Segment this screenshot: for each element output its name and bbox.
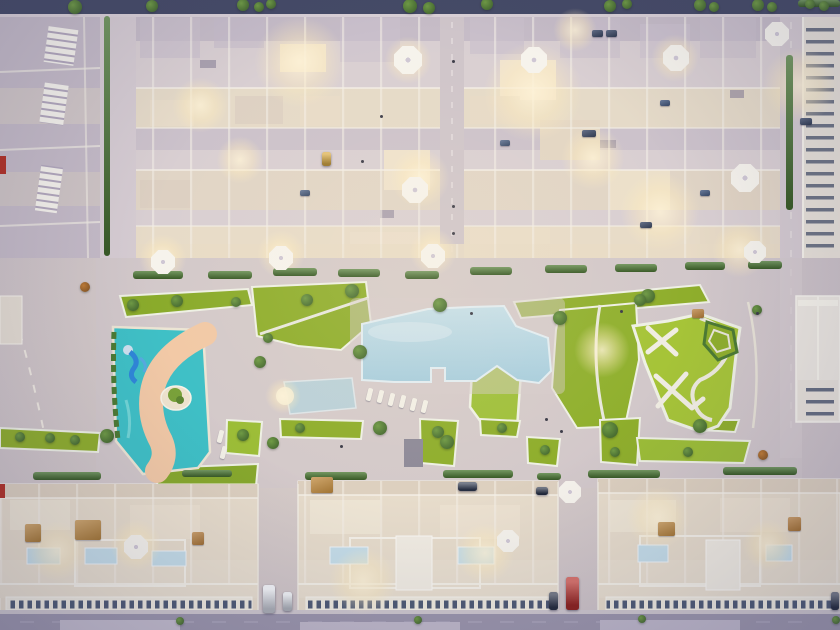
tree [752,0,764,11]
sun-lounger [366,388,374,402]
tree [254,356,266,368]
light-glow [742,519,794,571]
parasol-umbrella [731,164,759,192]
light-glow [574,322,630,378]
tree [819,1,829,11]
tree [353,345,367,359]
tree [176,617,184,625]
tree [100,429,114,443]
tree [694,0,706,11]
sun-lounger [377,390,385,404]
pedestrian [470,312,473,315]
pedestrian [380,115,383,118]
parasol-umbrella [521,47,547,73]
tree [610,447,620,457]
light-glow [626,486,690,550]
sun-lounger [410,398,418,412]
hedge-row [470,267,512,275]
tree [267,437,279,449]
props-layer [0,0,840,630]
sun-lounger [388,393,396,407]
tree [266,0,276,9]
light-glow [620,172,700,252]
tree [709,2,719,12]
hedge-row [33,472,101,480]
terrace-furniture [700,190,710,196]
terrace-furniture [658,522,675,536]
sun-lounger [399,395,407,409]
tree [45,433,55,443]
tree [805,0,815,9]
tree [638,615,646,623]
tree [602,422,618,438]
tree [373,421,387,435]
terrace-furniture [692,309,704,318]
tree [767,2,777,12]
parasol-umbrella [559,481,581,503]
tree [497,423,507,433]
pedestrian [545,418,548,421]
hedge-row [588,470,660,478]
tree [301,294,313,306]
tree [70,435,80,445]
vehicle-dark-car [831,592,839,610]
tree [254,2,264,12]
hedge-row [182,470,232,477]
vehicle-dark-car [549,592,558,610]
terrace-furniture [300,190,310,196]
terrace-furniture [25,524,41,542]
tree [80,282,90,292]
hedge-row [537,473,561,480]
tree [263,333,273,343]
parasol-umbrella [151,250,175,274]
aerial-render-residential-complex [0,0,840,630]
hedge-row [545,265,587,273]
vehicle-white-car [283,592,292,611]
terrace-furniture [640,222,652,228]
hedge-row [723,467,797,475]
tree [237,429,249,441]
hedge-row [615,264,657,272]
hedge-row [208,271,252,279]
pedestrian [452,205,455,208]
vehicle-white-van [263,585,275,613]
tree [423,2,435,14]
tree [171,295,183,307]
tree [146,0,158,12]
tree [634,294,646,306]
tree [693,419,707,433]
tree [414,616,422,624]
vehicle-dark-car [458,482,477,491]
tree [403,0,417,13]
sun-lounger [220,446,228,460]
pedestrian [756,312,759,315]
tree [440,435,454,449]
terrace-furniture [582,130,596,137]
vehicle-dark-car [536,487,548,495]
parasol-umbrella [421,244,445,268]
tree [68,0,82,14]
parasol-umbrella [269,246,293,270]
tree [832,616,840,624]
tree [237,0,249,11]
tree [622,0,632,9]
hedge-row [685,262,725,270]
terrace-furniture [75,520,101,540]
vehicle-red-truck [566,577,579,610]
light-glow [329,547,397,615]
pedestrian [560,430,563,433]
tree [231,297,241,307]
tree [432,426,444,438]
tree [553,311,567,325]
tree [15,432,25,442]
tree [433,298,447,312]
terrace-furniture [788,517,801,531]
pedestrian [340,445,343,448]
hedge-row [443,470,513,478]
parasol-umbrella [663,45,689,71]
tree [295,423,305,433]
light-glow [265,378,301,414]
vehicle-yellow-cart [322,152,331,166]
terrace-furniture [192,532,204,545]
hedge-row [338,269,380,277]
sun-lounger [421,400,429,414]
terrace-furniture [311,477,333,493]
light-glow [216,136,264,184]
terrace-furniture [660,100,670,106]
pedestrian [361,160,364,163]
terrace-furniture [500,140,510,146]
terrace-furniture [800,118,812,125]
parasol-umbrella [394,46,422,74]
pedestrian [452,60,455,63]
tree [345,284,359,298]
tree [604,0,616,12]
hedge-row [786,55,793,210]
tree [758,450,768,460]
tree [683,447,693,457]
hedge-row [405,271,439,279]
sun-lounger [217,430,225,444]
light-glow [172,77,228,133]
terrace-furniture [592,30,603,37]
hedge-row [104,16,110,256]
light-glow [254,16,346,108]
terrace-furniture [606,30,617,37]
light-glow [553,8,597,52]
pedestrian [620,310,623,313]
tree [481,0,493,10]
tree [127,299,139,311]
pedestrian [452,232,455,235]
light-glow [762,47,838,123]
tree [540,445,550,455]
parasol-umbrella [765,22,789,46]
